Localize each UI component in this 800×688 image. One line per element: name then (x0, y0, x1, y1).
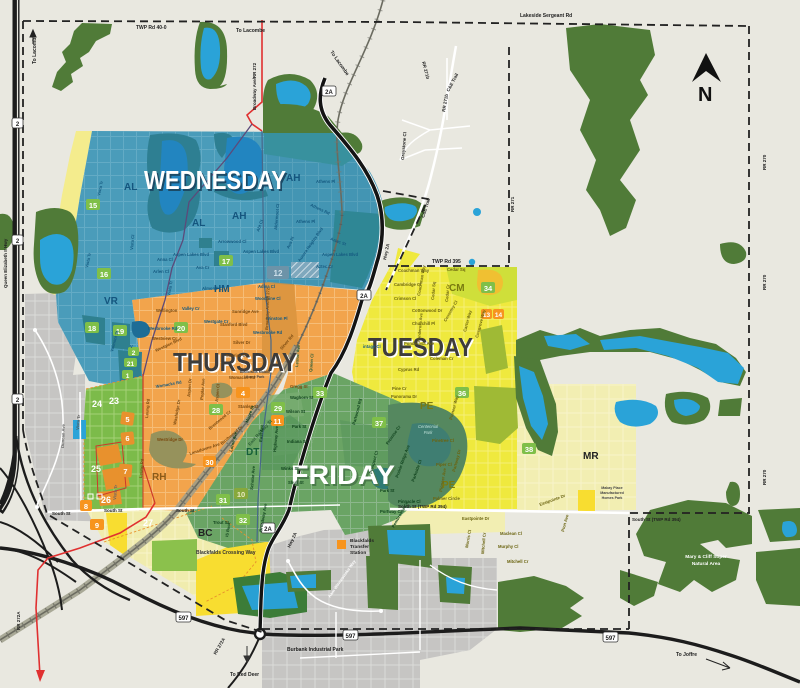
svg-text:Shull St: Shull St (288, 480, 304, 485)
svg-text:Duncan Ave: Duncan Ave (60, 423, 66, 448)
svg-text:South St: South St (176, 508, 195, 513)
svg-text:Blackfalds Mobile: Blackfalds Mobile (240, 370, 270, 374)
svg-text:Crimson Cl: Crimson Cl (394, 296, 416, 301)
svg-text:Athens Pl: Athens Pl (316, 179, 335, 184)
svg-text:28: 28 (212, 406, 220, 415)
svg-text:30: 30 (205, 458, 213, 467)
svg-text:Waghorn St: Waghorn St (290, 395, 314, 400)
svg-text:25: 25 (91, 464, 101, 474)
svg-text:14: 14 (495, 312, 503, 319)
svg-text:Makay Place: Makay Place (601, 486, 622, 490)
svg-text:15: 15 (89, 201, 97, 210)
svg-text:Park St: Park St (292, 424, 307, 429)
svg-text:Broadway Ave/RR 272: Broadway Ave/RR 272 (252, 62, 257, 110)
svg-text:597: 597 (605, 636, 616, 642)
svg-text:Burbank Industrial Park: Burbank Industrial Park (287, 647, 344, 653)
svg-text:Station: Station (350, 550, 366, 556)
svg-text:Palmer Circle: Palmer Circle (433, 496, 460, 501)
svg-text:RR 272A: RR 272A (16, 611, 21, 630)
svg-text:AH: AH (232, 211, 246, 222)
svg-text:Anna Cl: Anna Cl (157, 257, 173, 262)
svg-text:11: 11 (274, 417, 282, 426)
svg-text:Mitchell Cr: Mitchell Cr (507, 559, 529, 564)
svg-text:31: 31 (219, 496, 227, 505)
svg-text:1: 1 (126, 373, 130, 380)
svg-text:Aztec Cr: Aztec Cr (316, 264, 333, 269)
svg-text:Pine Cr: Pine Cr (392, 386, 407, 391)
svg-text:Blackfalds Crossing Way: Blackfalds Crossing Way (196, 550, 256, 556)
svg-text:Stanford Blvd: Stanford Blvd (220, 322, 248, 327)
svg-text:RR 270: RR 270 (762, 469, 767, 485)
svg-text:10: 10 (237, 490, 245, 499)
svg-text:Winks St: Winks St (281, 466, 299, 471)
svg-text:Pinnacle Cl: Pinnacle Cl (398, 499, 421, 504)
svg-text:Athens Pl: Athens Pl (296, 219, 315, 224)
svg-text:Eastpointe Dr: Eastpointe Dr (462, 516, 490, 521)
svg-text:Maclean Cl: Maclean Cl (500, 531, 522, 536)
svg-text:Wellington: Wellington (156, 308, 178, 313)
svg-text:TWP Rd 40-0: TWP Rd 40-0 (136, 25, 167, 31)
svg-text:33: 33 (316, 389, 324, 398)
svg-text:Piper Cl: Piper Cl (436, 462, 452, 467)
svg-text:Arlen Cl: Arlen Cl (153, 269, 169, 274)
svg-text:23: 23 (109, 396, 119, 406)
svg-text:Churchill Pl: Churchill Pl (412, 321, 435, 326)
svg-text:18: 18 (88, 324, 96, 333)
svg-text:BC: BC (198, 528, 212, 539)
svg-text:Wesbrooke Rd: Wesbrooke Rd (148, 326, 178, 331)
svg-text:32: 32 (239, 516, 247, 525)
svg-text:Womacks Rd: Womacks Rd (229, 375, 256, 380)
svg-text:RR 271: RR 271 (510, 196, 515, 212)
svg-text:To Joffre: To Joffre (676, 652, 697, 658)
svg-text:2A: 2A (264, 527, 272, 533)
svg-text:2: 2 (132, 350, 136, 357)
svg-text:7: 7 (123, 467, 127, 476)
svg-text:RR 270: RR 270 (762, 154, 767, 170)
svg-text:South St (TWP Rd 394): South St (TWP Rd 394) (632, 517, 681, 522)
svg-text:Westridge Dr: Westridge Dr (157, 437, 183, 442)
svg-text:WEDNESDAY: WEDNESDAY (144, 165, 286, 195)
svg-text:Aspen Lakes Blvd: Aspen Lakes Blvd (243, 249, 280, 254)
svg-text:2A: 2A (325, 90, 333, 96)
svg-text:N: N (698, 84, 712, 106)
svg-text:Transfer: Transfer (350, 544, 369, 550)
svg-text:Sunrise Cl: Sunrise Cl (226, 353, 247, 358)
svg-text:Silver Dr: Silver Dr (233, 340, 251, 345)
svg-text:MR: MR (583, 451, 599, 462)
svg-text:AL: AL (124, 182, 137, 193)
svg-text:34: 34 (484, 284, 493, 293)
svg-text:AH: AH (286, 173, 300, 184)
svg-text:To Lacombe: To Lacombe (236, 28, 265, 34)
svg-text:2A: 2A (360, 294, 368, 300)
svg-text:20: 20 (177, 324, 185, 333)
svg-text:FRIDAY: FRIDAY (291, 460, 395, 490)
svg-text:Sunridge Ave: Sunridge Ave (232, 309, 259, 314)
svg-text:597: 597 (345, 634, 356, 640)
svg-text:Murphy Cl: Murphy Cl (498, 544, 518, 549)
svg-text:Blackfalds: Blackfalds (350, 538, 374, 544)
svg-text:37: 37 (375, 419, 383, 428)
svg-text:38: 38 (525, 445, 533, 454)
svg-text:Arrowwood Cl: Arrowwood Cl (218, 239, 246, 244)
svg-text:RR 270: RR 270 (762, 274, 767, 290)
svg-text:Wilson St: Wilson St (286, 409, 306, 414)
svg-text:Aspen Lakes Blvd: Aspen Lakes Blvd (322, 252, 359, 257)
svg-text:Panorama Dr: Panorama Dr (391, 394, 417, 399)
svg-text:8: 8 (84, 502, 88, 511)
svg-text:27: 27 (143, 518, 153, 528)
svg-text:AL: AL (192, 218, 205, 229)
svg-text:Homes Park: Homes Park (602, 496, 623, 500)
svg-text:Centennial: Centennial (418, 424, 439, 429)
svg-text:21: 21 (127, 361, 135, 368)
svg-text:Natural Area: Natural Area (692, 561, 721, 567)
svg-text:Cottonwood Dr: Cottonwood Dr (412, 308, 443, 313)
svg-text:CM: CM (449, 283, 465, 294)
svg-text:Manufactured: Manufactured (600, 491, 624, 495)
svg-text:24: 24 (92, 399, 102, 409)
svg-text:29: 29 (274, 404, 282, 413)
svg-text:9: 9 (95, 521, 99, 530)
svg-text:5: 5 (125, 415, 129, 424)
svg-text:South St: South St (104, 508, 123, 513)
svg-text:Ava Cr: Ava Cr (196, 265, 210, 270)
svg-text:17: 17 (222, 257, 230, 266)
svg-text:Coleman Cr: Coleman Cr (430, 356, 454, 361)
svg-text:Park St: Park St (380, 488, 395, 493)
svg-text:Cyprus Rd: Cyprus Rd (398, 367, 420, 372)
svg-text:Aspen Lakes Blvd: Aspen Lakes Blvd (173, 252, 210, 257)
svg-text:RH: RH (152, 472, 166, 483)
svg-text:16: 16 (100, 270, 108, 279)
svg-text:6: 6 (125, 434, 129, 443)
svg-text:Valley Cr: Valley Cr (182, 306, 200, 311)
svg-text:THURSDAY: THURSDAY (173, 347, 297, 377)
svg-text:South St: South St (52, 511, 71, 516)
svg-text:PE: PE (420, 401, 434, 412)
svg-text:Gregg St: Gregg St (290, 384, 308, 389)
svg-text:Indiana St: Indiana St (287, 439, 308, 444)
svg-text:To Red Deer: To Red Deer (230, 672, 259, 678)
svg-text:VR: VR (104, 296, 119, 307)
svg-text:Almond Cr: Almond Cr (202, 286, 224, 291)
svg-text:DT: DT (246, 447, 259, 458)
svg-text:Cedar Sq: Cedar Sq (447, 267, 466, 272)
svg-text:Park: Park (424, 430, 434, 435)
svg-text:TWP Rd 395: TWP Rd 395 (432, 259, 461, 265)
svg-text:Mary & Cliff Soper: Mary & Cliff Soper (685, 554, 727, 560)
svg-text:Lakeside Sergeant Rd: Lakeside Sergeant Rd (520, 13, 572, 19)
svg-text:Pinetree Cl: Pinetree Cl (432, 438, 454, 443)
svg-text:Queen Elizabeth II Hwy: Queen Elizabeth II Hwy (3, 238, 8, 288)
svg-text:597: 597 (178, 616, 189, 622)
svg-text:12: 12 (274, 269, 283, 278)
